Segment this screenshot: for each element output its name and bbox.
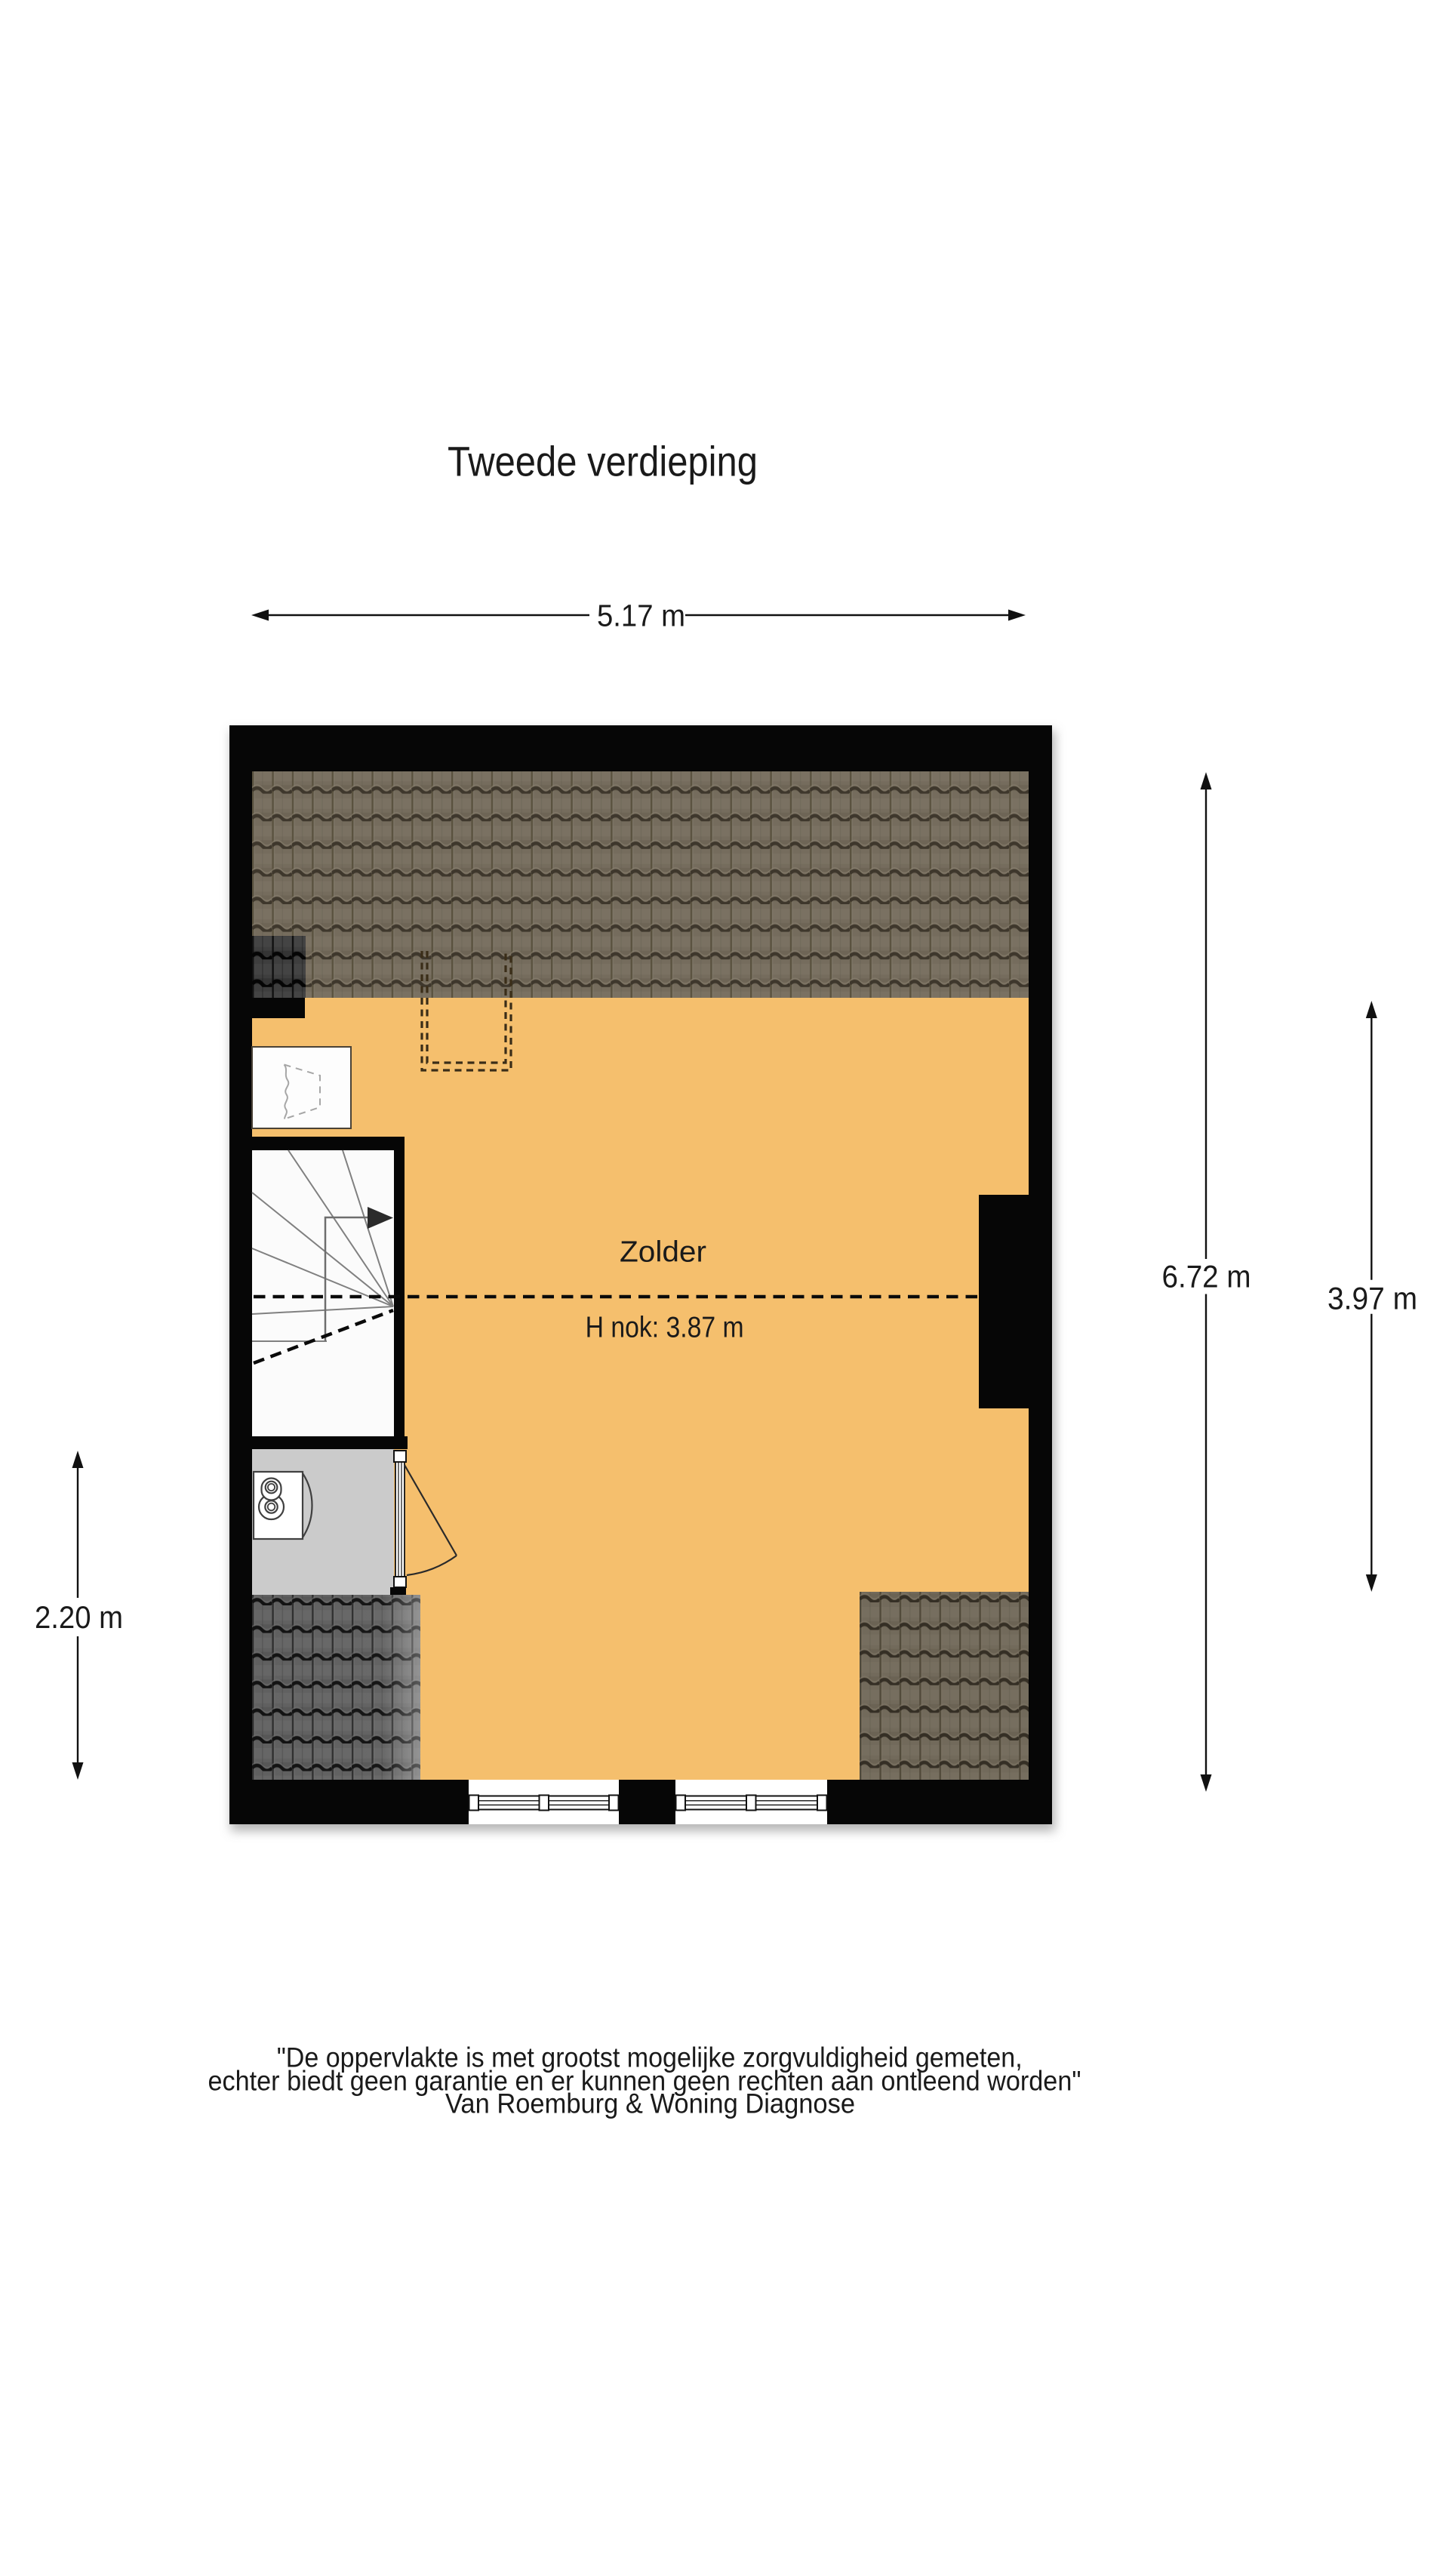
svg-text:3.97 m: 3.97 m bbox=[1327, 1281, 1417, 1316]
svg-text:5.17 m: 5.17 m bbox=[597, 599, 685, 633]
svg-text:H nok: 3.87 m: H nok: 3.87 m bbox=[586, 1312, 744, 1344]
svg-text:Zolder: Zolder bbox=[620, 1236, 706, 1268]
svg-text:2.20 m: 2.20 m bbox=[35, 1599, 123, 1635]
svg-text:Van Roemburg & Woning Diagnose: Van Roemburg & Woning Diagnose bbox=[445, 2088, 855, 2119]
svg-text:Tweede verdieping: Tweede verdieping bbox=[448, 438, 758, 485]
svg-text:6.72 m: 6.72 m bbox=[1162, 1259, 1251, 1294]
